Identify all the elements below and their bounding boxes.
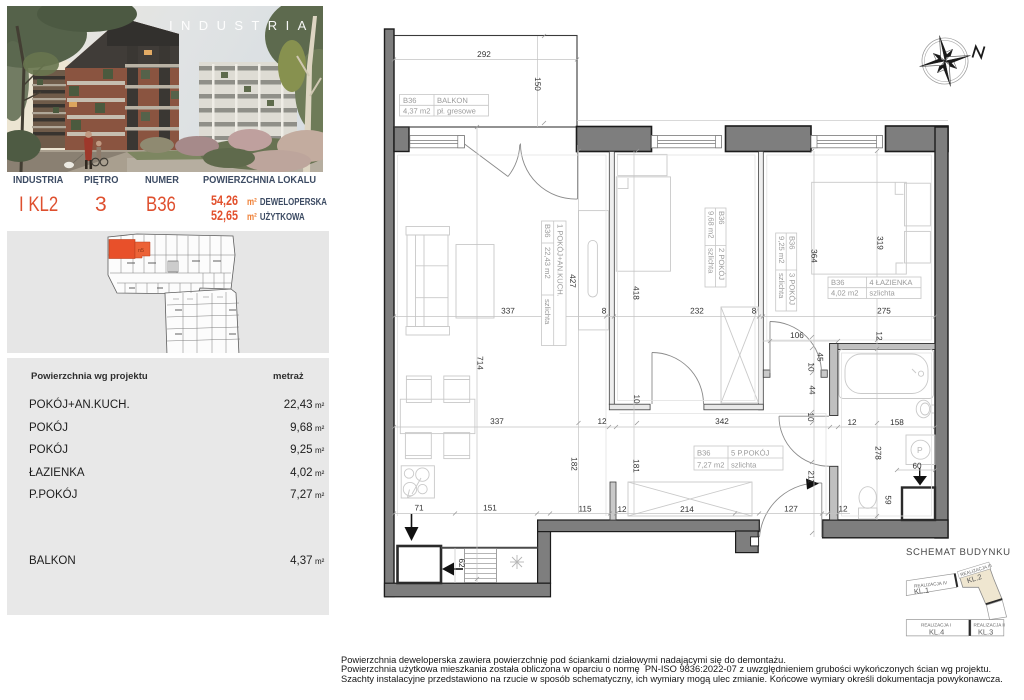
svg-text:337: 337 <box>501 307 515 316</box>
svg-text:4,37 m2: 4,37 m2 <box>403 107 430 116</box>
svg-text:181: 181 <box>632 459 641 473</box>
svg-text:8: 8 <box>602 307 607 316</box>
svg-text:8: 8 <box>752 307 757 316</box>
svg-text:151: 151 <box>483 504 497 513</box>
svg-text:szlichta: szlichta <box>543 299 552 325</box>
svg-text:3 POKÓJ: 3 POKÓJ <box>788 273 797 305</box>
svg-text:4,02 m2: 4,02 m2 <box>831 289 858 298</box>
svg-text:60: 60 <box>912 462 922 471</box>
svg-text:10: 10 <box>632 394 641 404</box>
svg-text:150: 150 <box>533 77 542 91</box>
svg-text:BALKON: BALKON <box>437 96 468 105</box>
svg-text:INDUSTRIA: INDUSTRIA <box>169 18 315 33</box>
svg-text:B36: B36 <box>831 278 845 287</box>
svg-text:12: 12 <box>838 505 848 514</box>
svg-text:10: 10 <box>807 362 816 372</box>
svg-text:12: 12 <box>617 505 627 514</box>
svg-text:418: 418 <box>632 286 641 300</box>
svg-text:9,25 m2: 9,25 m2 <box>777 236 786 263</box>
svg-text:KL.1: KL.1 <box>914 586 930 597</box>
svg-text:P: P <box>917 445 923 455</box>
svg-text:szlichta: szlichta <box>777 273 786 299</box>
svg-text:szlichta: szlichta <box>731 461 757 470</box>
svg-text:4 ŁAZIENKA: 4 ŁAZIENKA <box>869 278 913 287</box>
svg-text:232: 232 <box>690 307 704 316</box>
svg-text:B36: B36 <box>403 96 417 105</box>
svg-text:22,43 m2: 22,43 m2 <box>543 247 552 279</box>
svg-text:44: 44 <box>808 385 817 395</box>
svg-text:szlichta: szlichta <box>869 289 895 298</box>
svg-text:278: 278 <box>874 446 883 460</box>
svg-text:9,68 m2: 9,68 m2 <box>707 211 716 238</box>
svg-text:B36: B36 <box>717 211 726 225</box>
svg-text:2 POKÓJ: 2 POKÓJ <box>717 248 726 280</box>
svg-text:364: 364 <box>810 249 819 263</box>
svg-text:292: 292 <box>477 50 491 59</box>
svg-text:KL.3: KL.3 <box>978 628 993 637</box>
svg-text:62: 62 <box>457 558 466 568</box>
svg-text:5 P.POKÓJ: 5 P.POKÓJ <box>731 449 769 458</box>
svg-text:10: 10 <box>806 412 815 422</box>
svg-text:pł. gresowe: pł. gresowe <box>437 107 476 116</box>
svg-text:427: 427 <box>568 274 577 288</box>
svg-text:B36: B36 <box>788 236 797 250</box>
svg-text:158: 158 <box>890 418 904 427</box>
svg-text:71: 71 <box>414 504 424 513</box>
svg-text:182: 182 <box>570 457 579 471</box>
svg-text:214: 214 <box>680 505 694 514</box>
svg-text:KL.4: KL.4 <box>929 628 944 637</box>
svg-text:n5: n5 <box>138 248 144 254</box>
svg-text:B36: B36 <box>697 449 711 458</box>
svg-text:115: 115 <box>578 505 591 514</box>
svg-text:59: 59 <box>884 495 893 505</box>
svg-text:SCHEMAT BUDYNKU: SCHEMAT BUDYNKU <box>906 547 1011 558</box>
svg-text:szlichta: szlichta <box>707 248 716 274</box>
svg-text:337: 337 <box>490 417 504 426</box>
svg-text:12: 12 <box>875 331 884 341</box>
svg-text:45: 45 <box>816 352 825 362</box>
svg-text:275: 275 <box>877 307 891 316</box>
svg-text:12: 12 <box>597 417 607 426</box>
svg-text:12: 12 <box>847 418 857 427</box>
svg-text:B36: B36 <box>543 224 552 238</box>
svg-text:211: 211 <box>807 470 816 483</box>
svg-text:714: 714 <box>476 356 485 370</box>
svg-text:319: 319 <box>876 236 885 250</box>
svg-text:106: 106 <box>790 331 804 340</box>
svg-text:127: 127 <box>784 505 798 514</box>
svg-text:1 POKÓJ+AN.KUCH.: 1 POKÓJ+AN.KUCH. <box>556 224 565 297</box>
svg-text:342: 342 <box>715 417 729 426</box>
svg-text:7,27 m2: 7,27 m2 <box>697 461 724 470</box>
